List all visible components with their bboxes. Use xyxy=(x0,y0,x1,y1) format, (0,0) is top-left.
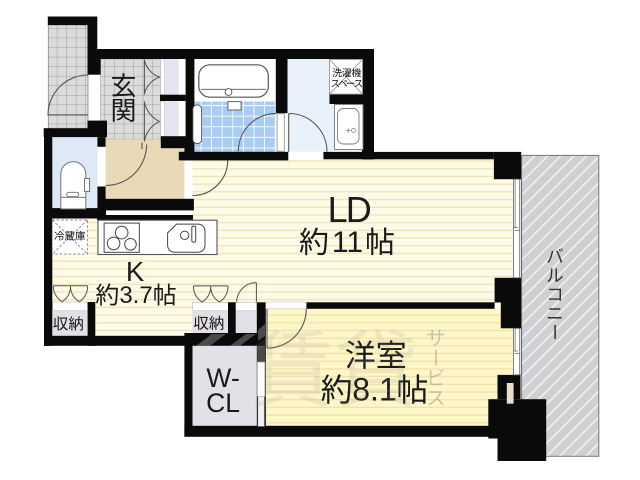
svg-text:11: 11 xyxy=(332,226,363,259)
svg-text:LD: LD xyxy=(328,189,371,230)
svg-text:CL: CL xyxy=(206,388,240,418)
svg-text:3.7: 3.7 xyxy=(119,282,152,309)
